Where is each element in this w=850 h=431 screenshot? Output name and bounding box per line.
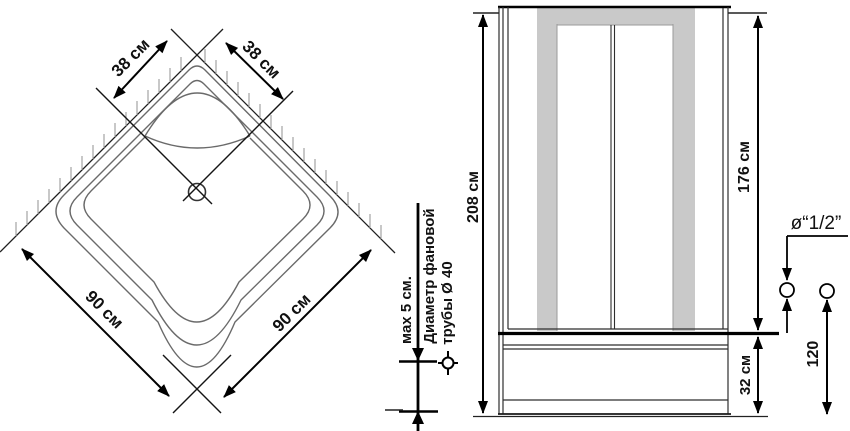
tray-top-view: 38 см 38 см 90 см 90 см [0,29,395,413]
water-fitting-circle-right [820,284,834,298]
pipe-diameter-label-line1: Диаметр фановой [421,208,438,343]
dimension-38-left: 38 см [108,35,167,98]
dim-32-label: 32 см [737,355,754,395]
wall-hatching-left [16,57,181,236]
door-frame-left-panel [537,24,557,331]
dimension-176-height: 176 см [736,16,758,330]
water-connection-detail: ø“1/2” 120 [780,213,848,414]
dim-38-left-label: 38 см [108,35,154,81]
cabin-front-view: 208 см 176 см 32 см [465,7,779,417]
dim-120-label: 120 [805,341,822,368]
dimension-90-left: 90 см [22,249,169,396]
front-corner-extension-2 [173,355,231,413]
door-frame-top-panel [537,8,695,25]
dim-90-left-label: 90 см [81,287,127,333]
shower-cabin-technical-drawing: 38 см 38 см 90 см 90 см мах 5 с [0,0,850,431]
tray-floor-contour [84,137,310,322]
up-arrow-icon [412,411,424,424]
down-arrow-icon [412,348,424,361]
dim-208-label: 208 см [465,171,482,223]
fitting-size-label: ø“1/2” [791,213,842,234]
dimension-120-height: 120 [805,300,827,414]
dimension-32-height: 32 см [737,337,758,413]
seat-lower-arc [145,136,250,148]
centerline-right [183,91,293,201]
dim-38-right-label: 38 см [238,37,284,83]
drain-pipe-symbol-icon [438,351,458,375]
max-height-label: мах 5 см. [398,276,415,344]
door-frame-right-panel [673,24,695,331]
dimension-90-right: 90 см [224,250,371,397]
drawing-canvas: 38 см 38 см 90 см 90 см мах 5 с [0,0,850,431]
dimension-38-right: 38 см [226,37,284,99]
pipe-diameter-label-line2: трубы Ø 40 [439,261,456,344]
drain-pipe-note: мах 5 см. Диаметр фановой трубы Ø 40 [385,203,458,431]
dimension-208-height: 208 см [465,15,483,413]
dim-176-label: 176 см [736,141,753,193]
wall-hatching-right [205,49,381,239]
water-fitting-circle-left [780,283,794,297]
front-corner-extension-1 [163,355,221,413]
